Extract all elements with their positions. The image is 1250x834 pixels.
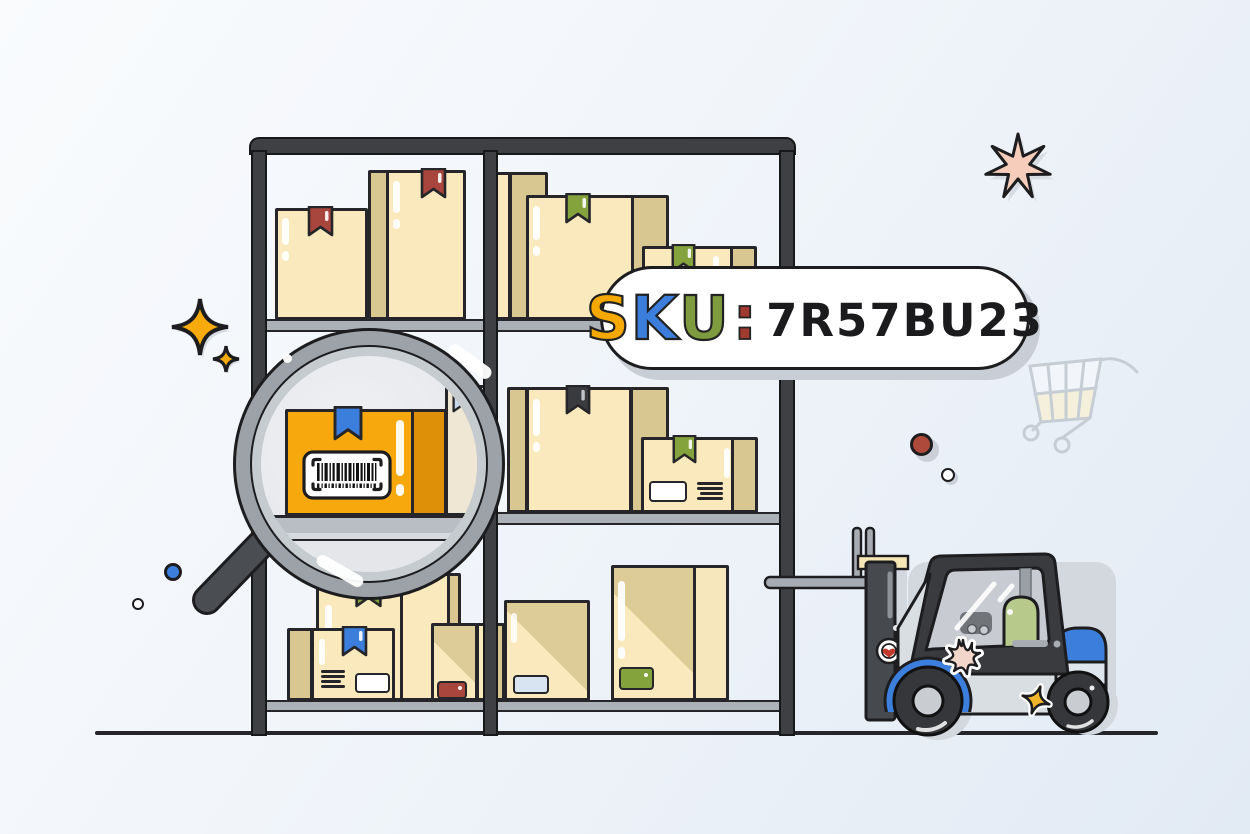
address-lines	[697, 482, 723, 485]
sku-speech-bubble: S K U : 7R57BU23	[600, 266, 1030, 370]
green-label	[619, 667, 654, 690]
shipping-label	[355, 673, 390, 693]
magnifying-glass-icon	[233, 328, 505, 600]
address-lines	[321, 670, 345, 673]
ribbon-icon	[564, 385, 592, 415]
red-dot	[910, 433, 933, 456]
sku-letter-s: S	[586, 288, 631, 349]
shopping-cart-icon	[1005, 345, 1155, 460]
ribbon-icon	[671, 435, 698, 464]
ribbon-icon	[307, 206, 334, 237]
highlighted-box-side	[411, 409, 447, 516]
ribbon-icon	[420, 168, 447, 199]
small-white-circle-2	[941, 468, 955, 482]
sku-letter-u: U	[679, 288, 730, 349]
burst-star-icon	[973, 125, 1068, 215]
sku-colon: :	[733, 288, 758, 349]
forklift-icon	[750, 518, 1150, 744]
ribbon-icon	[341, 626, 368, 657]
box-side	[507, 387, 528, 513]
sku-letter-k: K	[631, 288, 679, 349]
splat-sticker-icon	[946, 640, 980, 674]
shelf-board-bottom	[251, 700, 794, 712]
small-white-circle	[132, 598, 144, 610]
shipping-label	[649, 481, 687, 502]
blue-label	[513, 675, 549, 694]
magnifier-glass	[261, 356, 477, 572]
rim-highlight-dot	[283, 354, 292, 363]
ribbon-icon	[330, 406, 366, 441]
red-label	[437, 681, 467, 699]
box-side	[731, 437, 758, 513]
warehouse-illustration: S K U : 7R57BU23	[0, 0, 1250, 834]
box-side	[287, 628, 313, 701]
rack-top-bar	[249, 137, 796, 155]
ribbon-icon	[564, 193, 592, 224]
box-side	[693, 565, 729, 701]
sku-code: 7R57BU23	[766, 298, 1044, 343]
magnifier-inner-ring	[250, 345, 488, 583]
barcode-icon	[302, 450, 392, 500]
